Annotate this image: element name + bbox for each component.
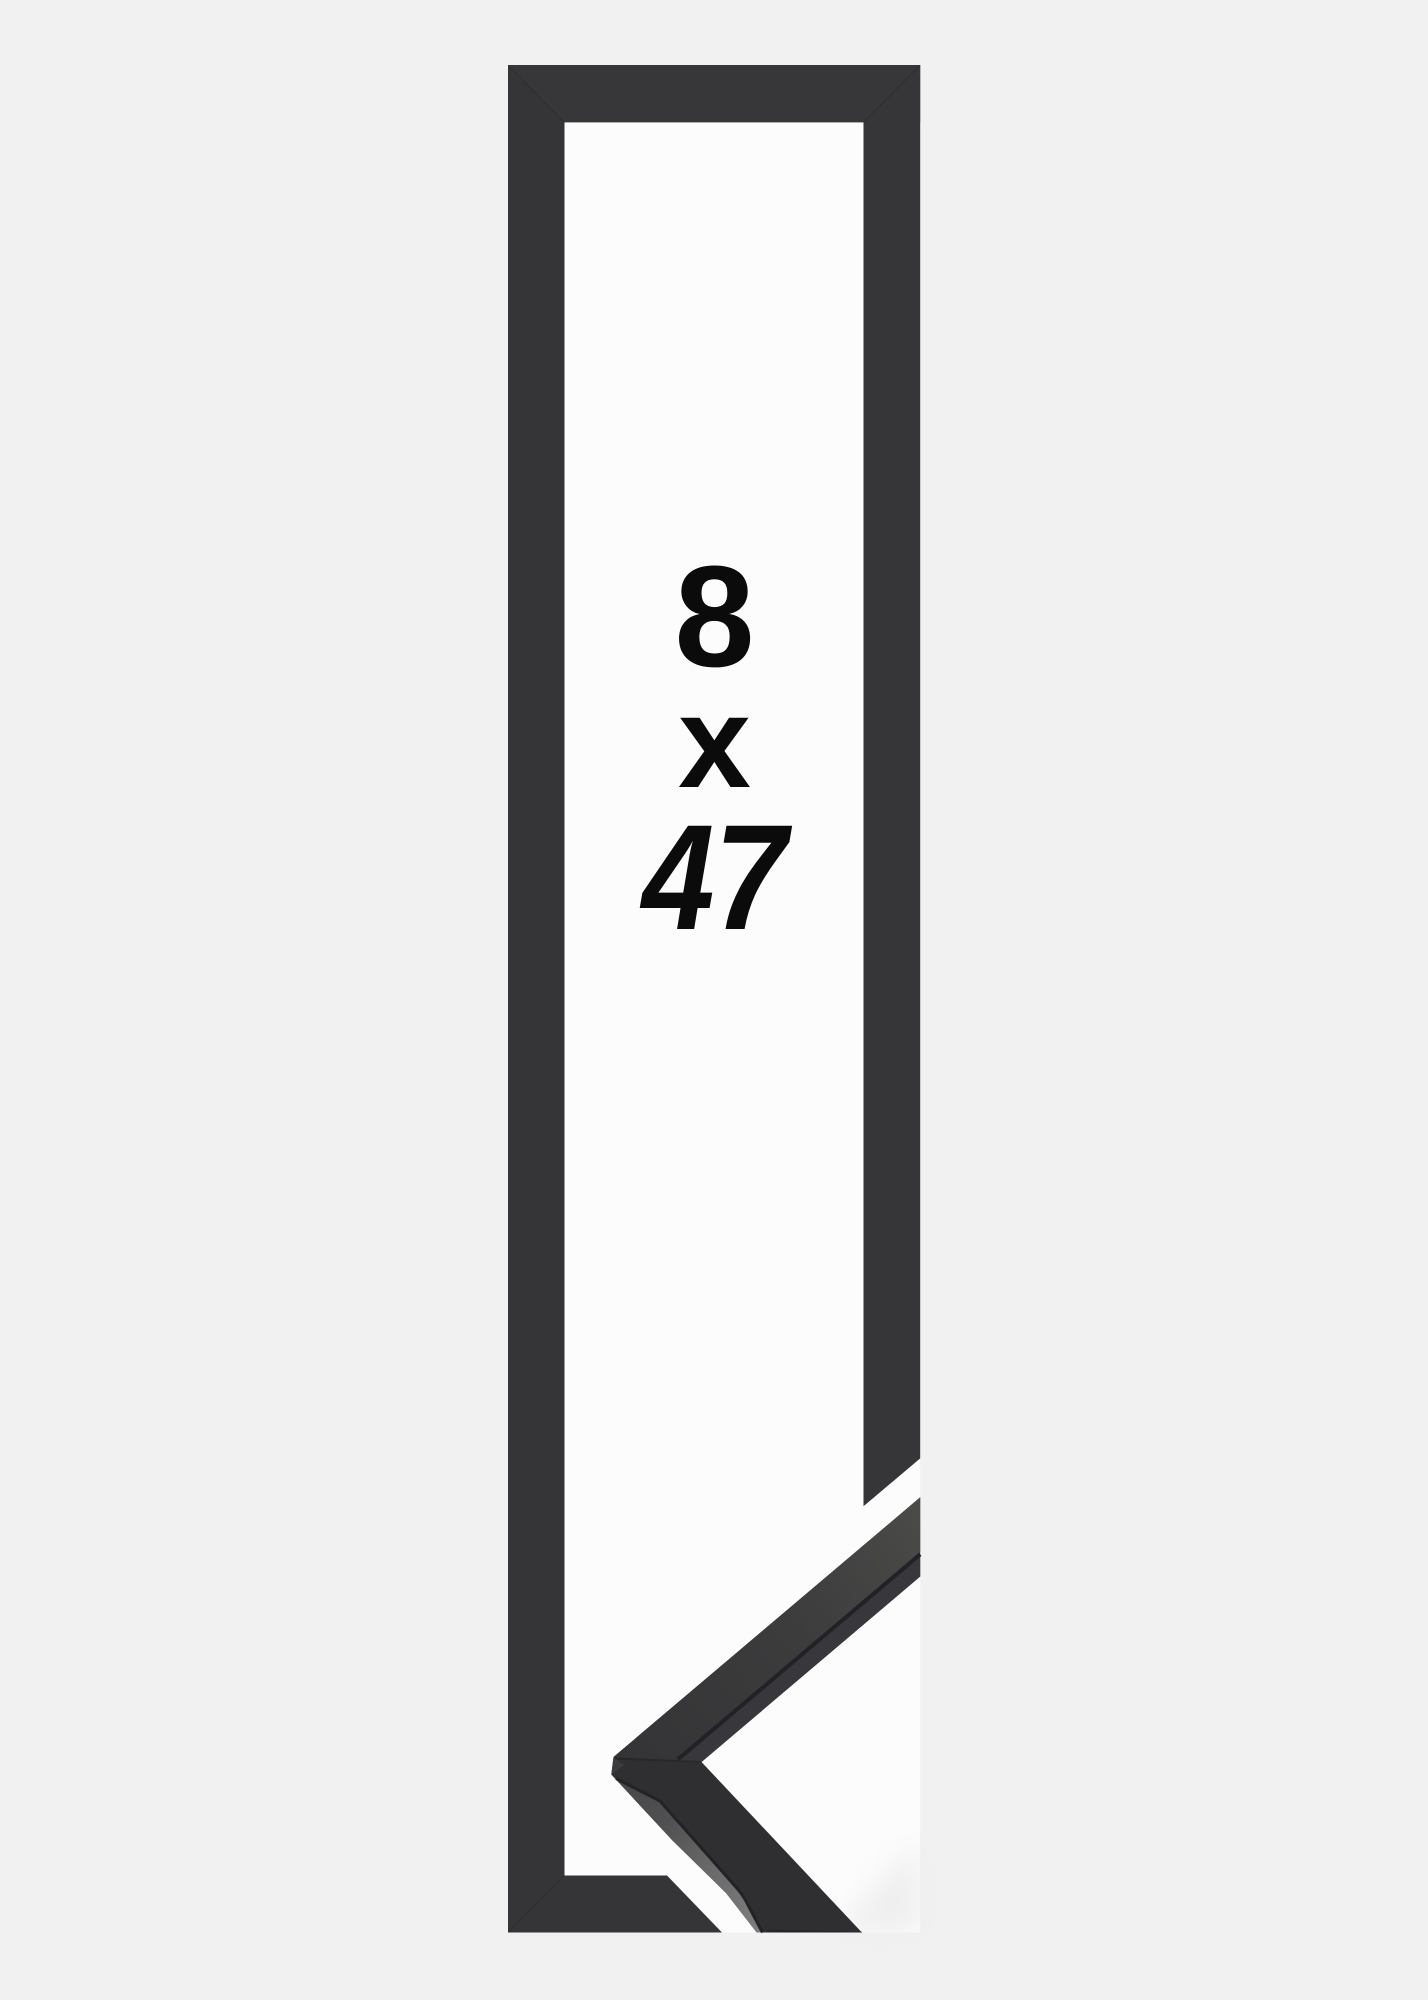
svg-text:47: 47 xyxy=(639,793,792,961)
